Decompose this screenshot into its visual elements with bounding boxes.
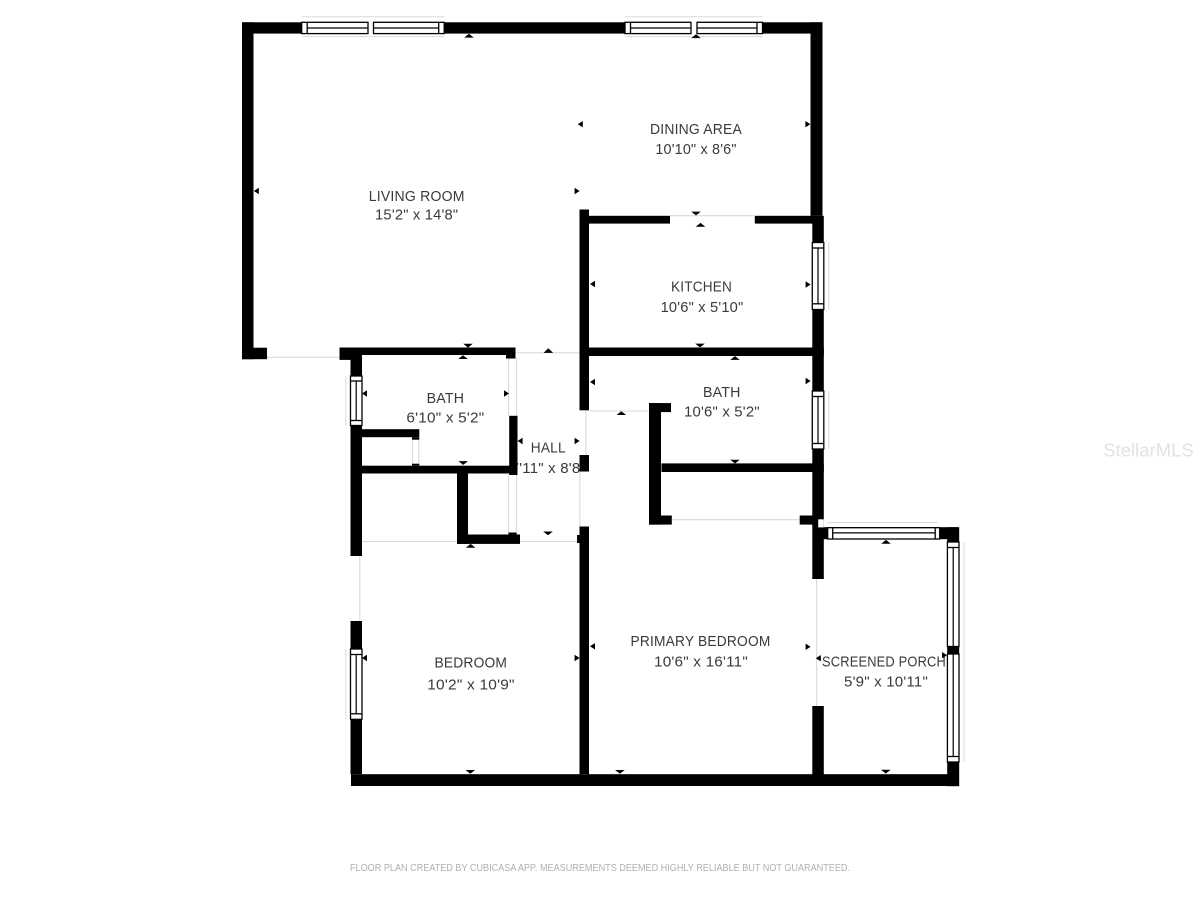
svg-text:LIVING ROOM: LIVING ROOM <box>369 189 465 205</box>
svg-text:7'11" x 8'8": 7'11" x 8'8" <box>511 460 586 477</box>
svg-text:PRIMARY BEDROOM: PRIMARY BEDROOM <box>631 634 771 650</box>
svg-text:HALL: HALL <box>531 440 566 456</box>
svg-text:10'2" x 10'9": 10'2" x 10'9" <box>427 677 515 694</box>
svg-text:BATH: BATH <box>703 385 741 401</box>
svg-text:5'9" x 10'11": 5'9" x 10'11" <box>844 673 928 690</box>
svg-text:SCREENED PORCH: SCREENED PORCH <box>822 654 946 670</box>
svg-text:StellarMLS: StellarMLS <box>1103 441 1194 461</box>
svg-text:10'6" x 5'2": 10'6" x 5'2" <box>684 404 760 421</box>
svg-text:FLOOR PLAN CREATED BY CUBICASA: FLOOR PLAN CREATED BY CUBICASA APP. MEAS… <box>350 863 850 874</box>
svg-text:10'6" x 16'11": 10'6" x 16'11" <box>654 654 748 671</box>
svg-text:15'2" x 14'8": 15'2" x 14'8" <box>375 206 458 223</box>
svg-text:BATH: BATH <box>427 391 465 407</box>
svg-text:KITCHEN: KITCHEN <box>671 280 732 296</box>
svg-text:10'6" x 5'10": 10'6" x 5'10" <box>661 299 744 316</box>
svg-text:6'10" x 5'2": 6'10" x 5'2" <box>406 409 484 426</box>
svg-text:10'10" x 8'6": 10'10" x 8'6" <box>655 141 736 158</box>
svg-text:DINING AREA: DINING AREA <box>650 122 742 138</box>
svg-text:BEDROOM: BEDROOM <box>434 656 507 672</box>
